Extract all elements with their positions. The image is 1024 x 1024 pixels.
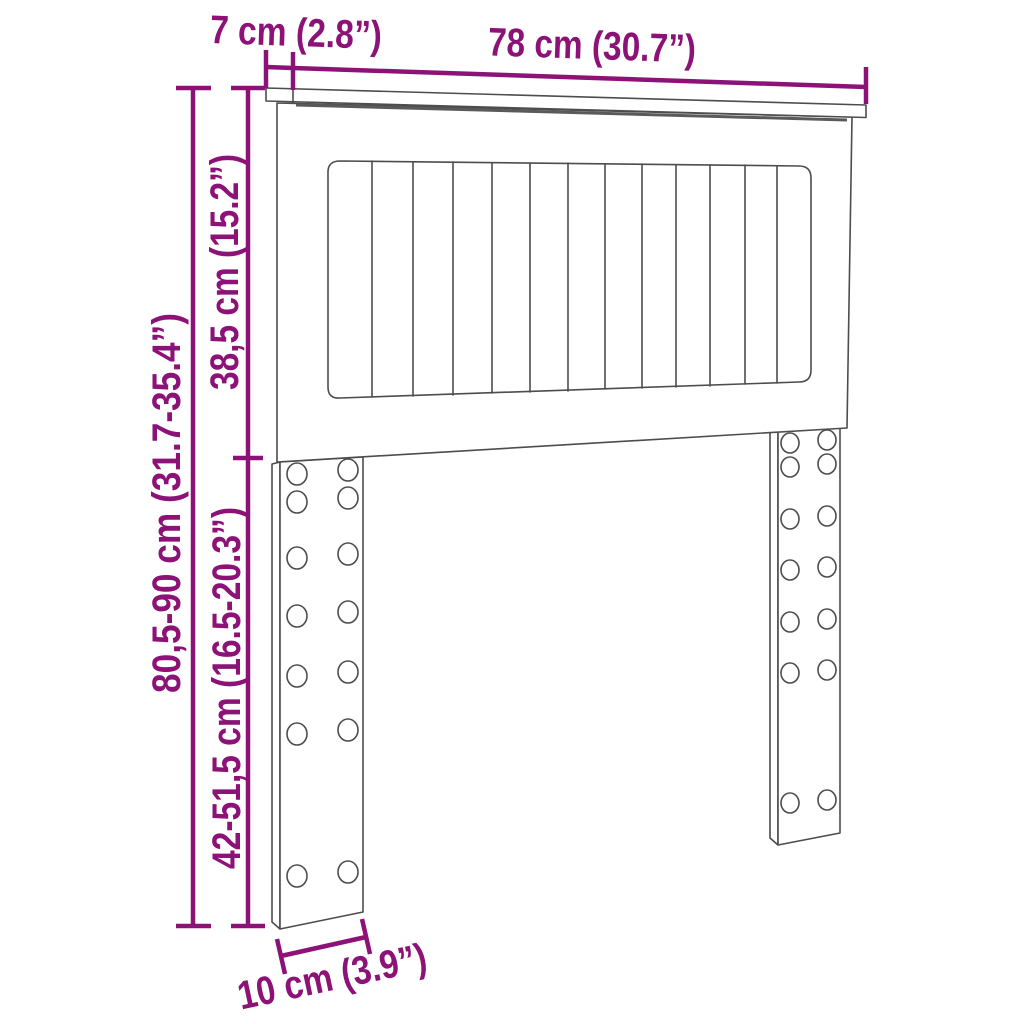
right-leg-front-face bbox=[778, 427, 840, 845]
right-leg-side-face bbox=[770, 430, 778, 845]
left-leg-side-face bbox=[272, 462, 280, 929]
dim-top-depth bbox=[266, 50, 293, 90]
dim-total-height-label: 80,5-90 cm (31.7-35.4”) bbox=[145, 313, 189, 693]
left-leg bbox=[272, 457, 363, 929]
dim-top-depth-label: 7 cm (2.8”) bbox=[209, 8, 382, 58]
panel-face bbox=[277, 103, 852, 462]
right-leg bbox=[770, 427, 840, 845]
headboard-dimension-diagram: 7 cm (2.8”) 78 cm (30.7”) 38,5 cm (15.2”… bbox=[0, 0, 1024, 1024]
dim-panel-height-label: 38,5 cm (15.2”) bbox=[203, 154, 247, 390]
left-leg-front-face bbox=[280, 457, 363, 929]
diagram-canvas: 7 cm (2.8”) 78 cm (30.7”) 38,5 cm (15.2”… bbox=[0, 0, 1024, 1024]
dim-width-label: 78 cm (30.7”) bbox=[487, 20, 696, 71]
headboard-panel bbox=[277, 103, 852, 462]
dim-leg-width-label: 10 cm (3.9”) bbox=[234, 935, 431, 1018]
dim-leg-height-label: 42-51,5 cm (16.5-20.3”) bbox=[205, 507, 249, 869]
